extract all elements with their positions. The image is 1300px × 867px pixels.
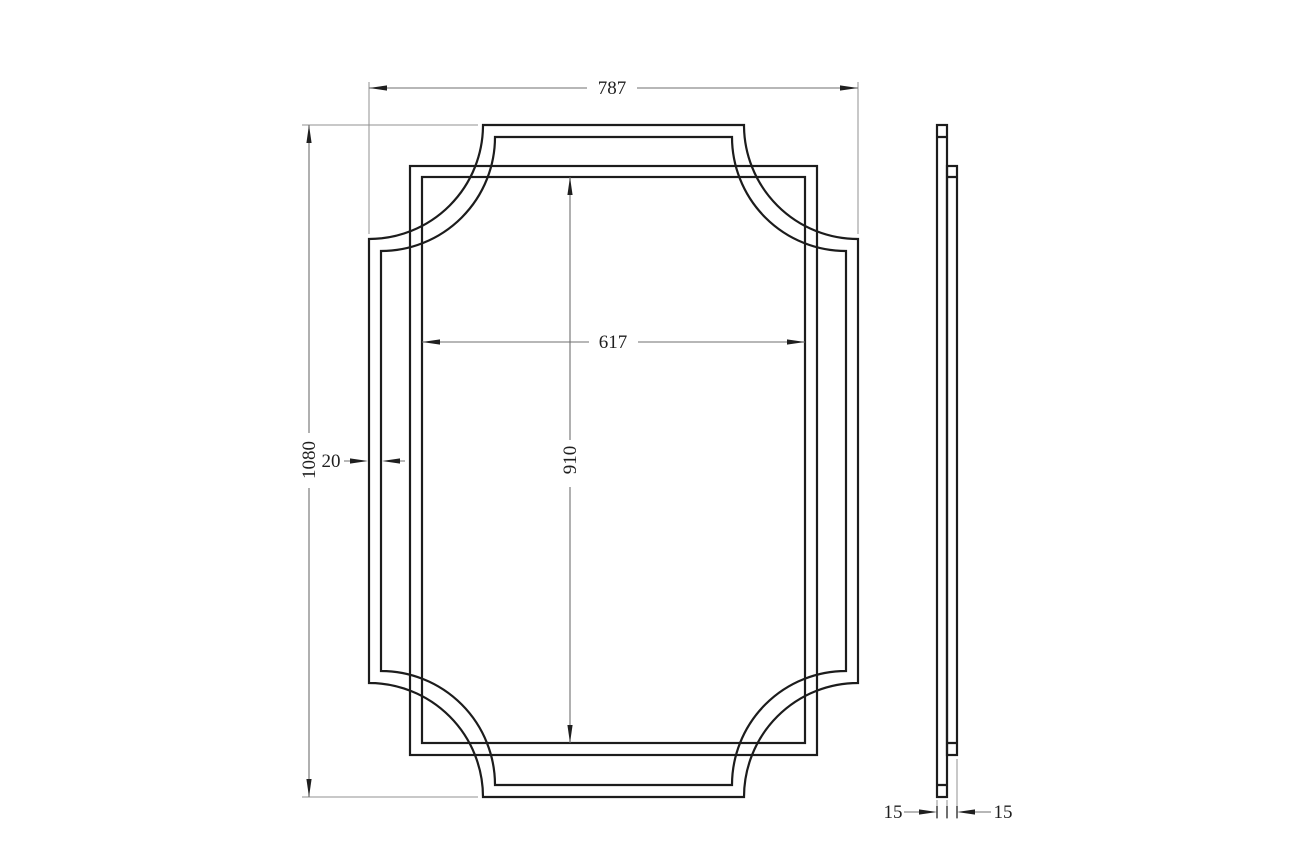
- dim-frame-band: 20: [322, 451, 406, 472]
- drawing-canvas: 787 1080 617 910 20: [0, 0, 1300, 867]
- dim-thickness: 15 15: [884, 802, 1013, 823]
- dim-overall-width-label: 787: [598, 78, 627, 99]
- arrow-left-icon: [382, 458, 400, 463]
- front-view: [369, 125, 858, 797]
- dim-inner-height-label: 910: [560, 446, 581, 475]
- band-inner-outline: [381, 137, 846, 785]
- arrow-left-icon: [957, 809, 975, 814]
- dim-overall-width: 787: [369, 78, 858, 99]
- side-back-panel: [937, 125, 947, 797]
- frame-inner-rect: [422, 177, 805, 743]
- arrow-right-icon: [787, 339, 805, 344]
- side-front-panel-caps: [947, 177, 957, 743]
- arrow-right-icon: [840, 85, 858, 90]
- arrow-left-icon: [422, 339, 440, 344]
- dim-overall-height: 1080: [299, 125, 320, 797]
- frame-outer-rect: [410, 166, 817, 755]
- arrow-right-icon: [350, 458, 368, 463]
- technical-drawing: 787 1080 617 910 20: [0, 0, 1300, 867]
- arrow-down-icon: [306, 779, 311, 797]
- dim-thickness-right-label: 15: [994, 802, 1013, 823]
- side-back-panel-caps: [937, 137, 947, 785]
- arrow-right-icon: [919, 809, 937, 814]
- dim-thickness-ticks: [937, 806, 957, 818]
- arrow-up-icon: [567, 177, 572, 195]
- dim-frame-band-label: 20: [322, 451, 341, 472]
- dim-thickness-left-label: 15: [884, 802, 903, 823]
- dim-inner-width-label: 617: [599, 332, 628, 353]
- arrow-down-icon: [567, 725, 572, 743]
- dim-inner-width: 617: [422, 332, 805, 353]
- arrow-up-icon: [306, 125, 311, 143]
- dim-overall-height-label: 1080: [299, 441, 320, 479]
- side-view: [937, 125, 957, 797]
- side-front-panel: [947, 166, 957, 755]
- dim-inner-height: 910: [560, 177, 581, 743]
- arrow-left-icon: [369, 85, 387, 90]
- band-outer-outline: [369, 125, 858, 797]
